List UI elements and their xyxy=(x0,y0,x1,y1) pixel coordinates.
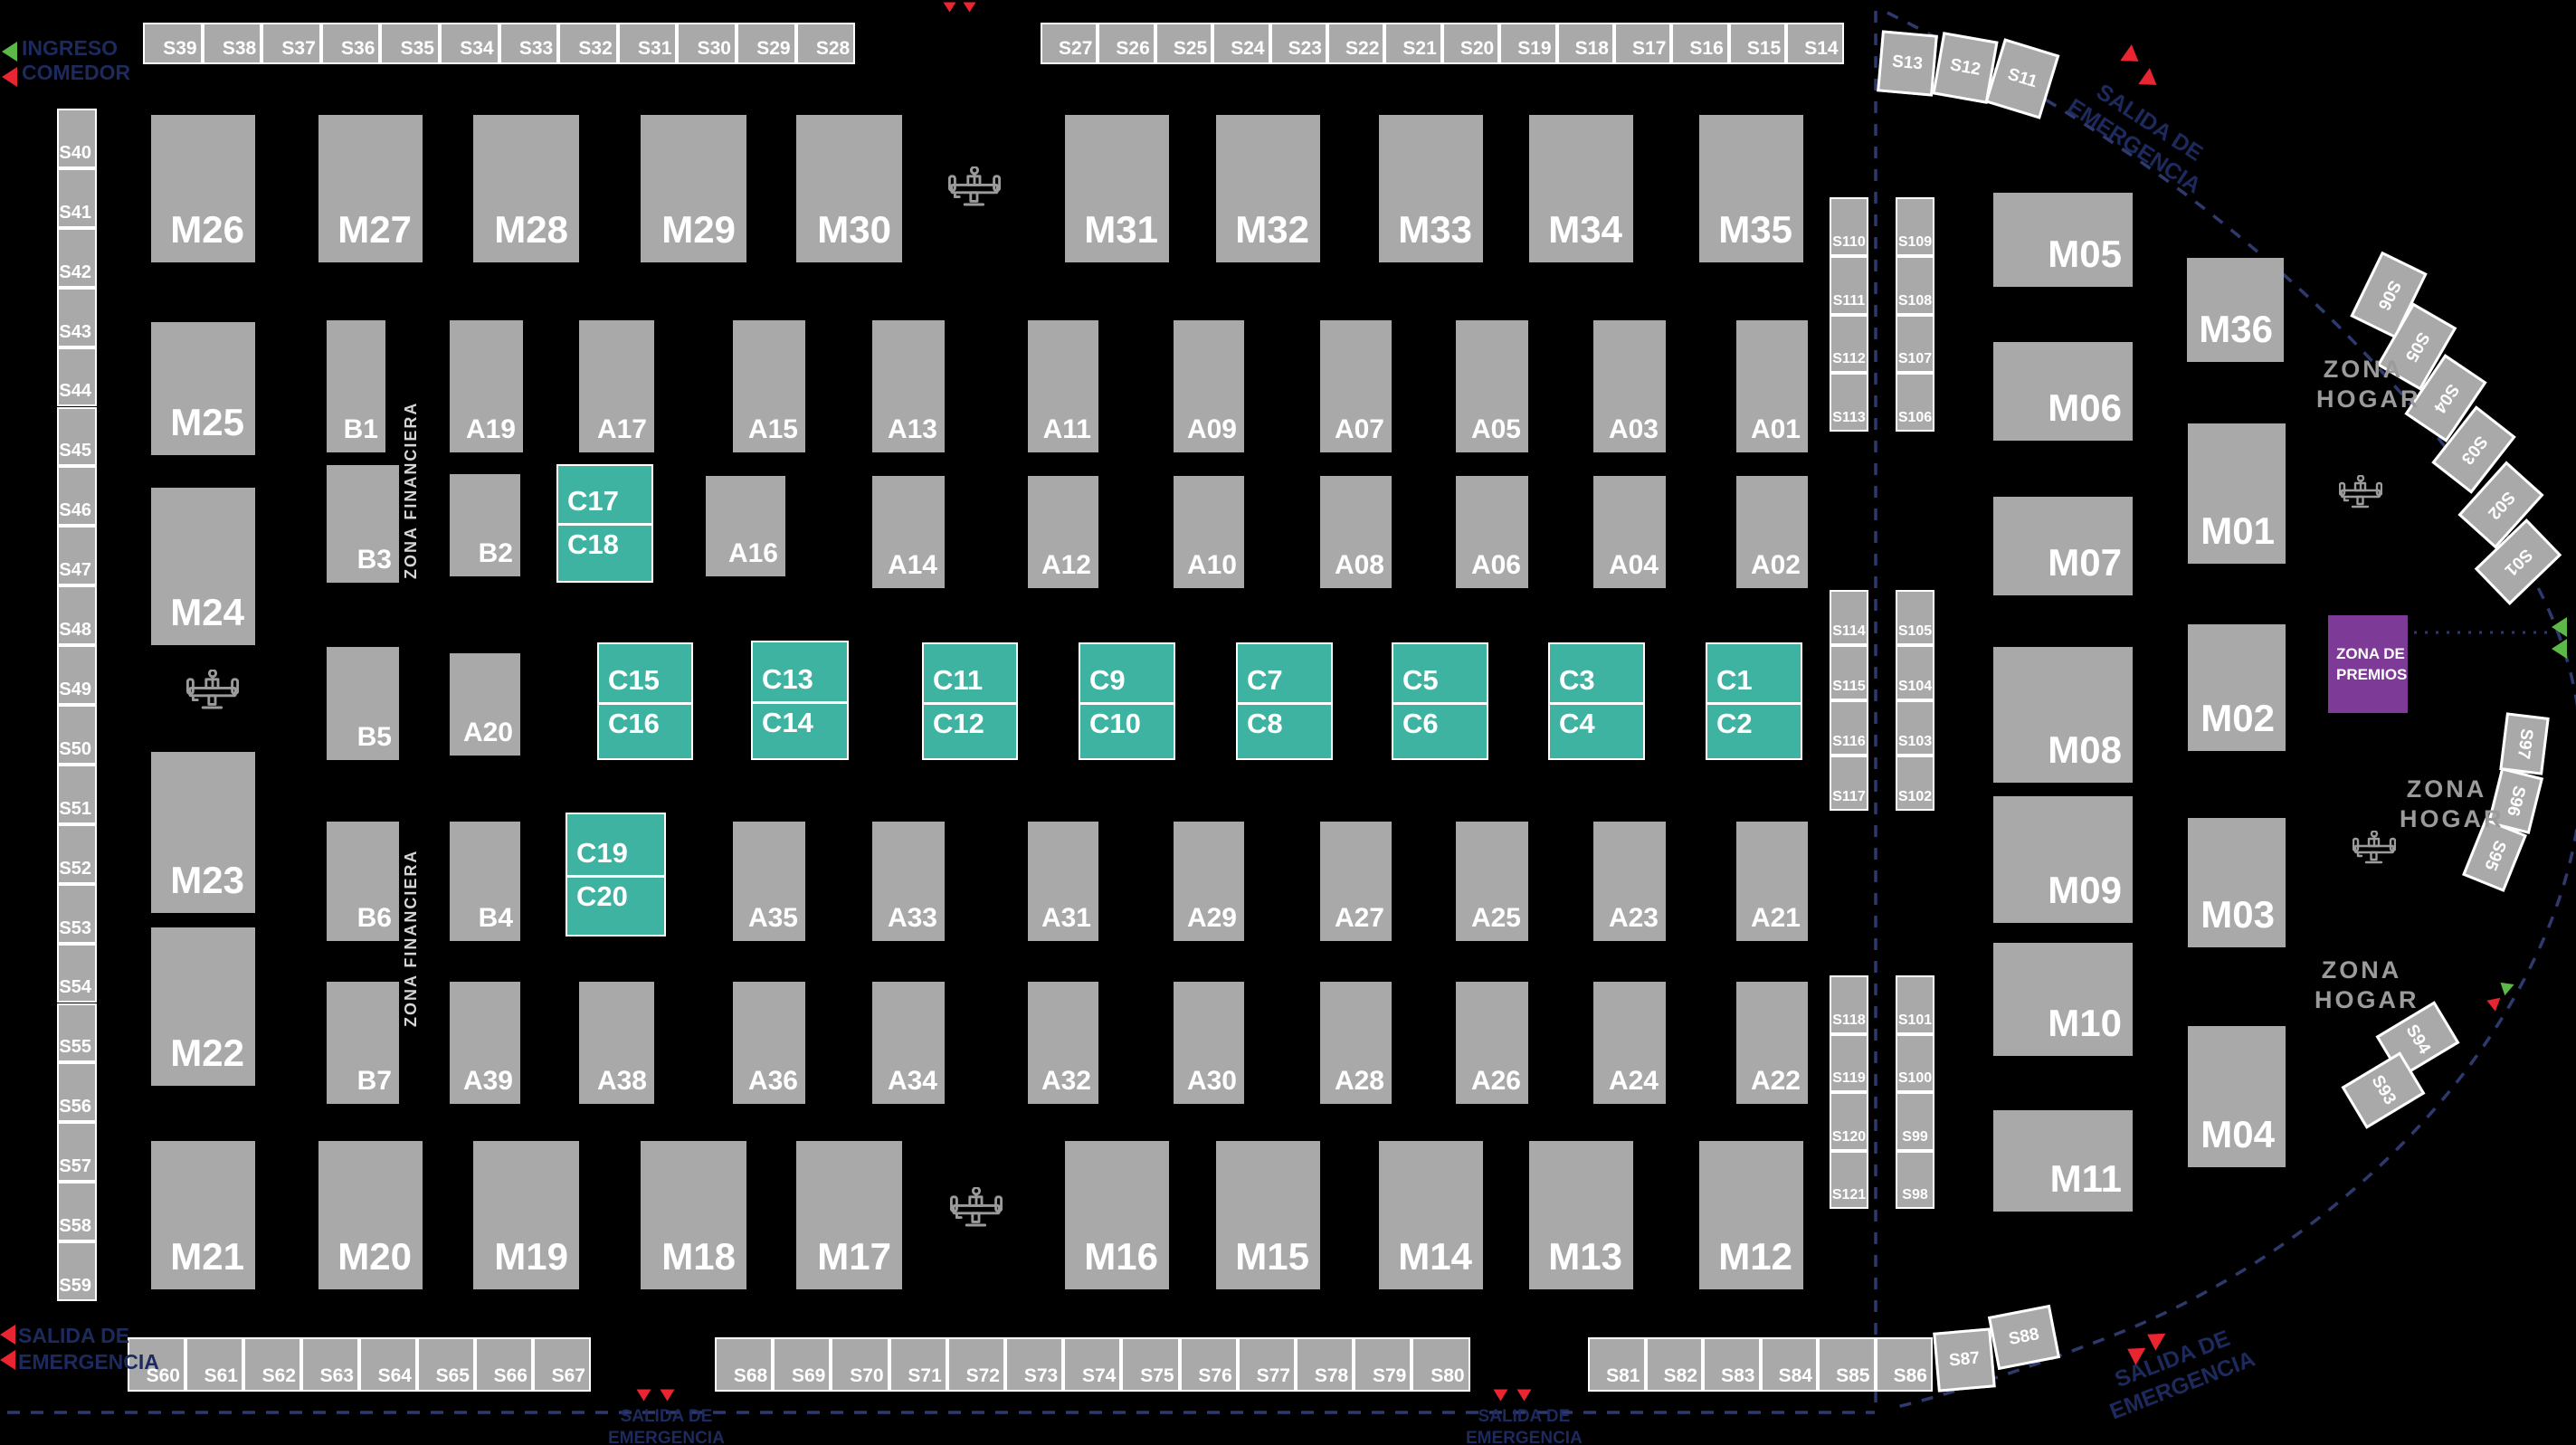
booth-s75[interactable]: S75 xyxy=(1121,1337,1179,1392)
booth-m02[interactable]: M02 xyxy=(2188,624,2286,751)
booth-label: A17 xyxy=(597,414,654,452)
booth-label: M32 xyxy=(1235,208,1320,262)
booth-s97[interactable]: S97 xyxy=(2499,712,2549,775)
booth-label: S84 xyxy=(1779,1365,1816,1390)
booth-label: C5 xyxy=(1402,666,1439,694)
booth-label: A14 xyxy=(888,550,945,588)
booth-m29[interactable]: M29 xyxy=(641,115,746,262)
booth-s101[interactable]: S101 xyxy=(1896,975,1934,1034)
booth-a35[interactable]: A35 xyxy=(733,822,805,941)
zone-hogar-label: ZONAHOGAR xyxy=(2316,355,2410,414)
booth-a07[interactable]: A07 xyxy=(1320,320,1392,452)
booth-s37[interactable]: S37 xyxy=(261,23,321,64)
booth-b5[interactable]: B5 xyxy=(327,647,399,760)
booth-m18[interactable]: M18 xyxy=(641,1141,746,1289)
booth-a23[interactable]: A23 xyxy=(1593,822,1666,941)
booth-b4[interactable]: B4 xyxy=(450,822,520,941)
booth-m10[interactable]: M10 xyxy=(1993,943,2133,1056)
booth-a20[interactable]: A20 xyxy=(450,653,520,756)
booth-a05[interactable]: A05 xyxy=(1456,320,1528,452)
booth-label: S62 xyxy=(262,1365,299,1390)
booth-s21[interactable]: S21 xyxy=(1384,23,1441,64)
booth-a27[interactable]: A27 xyxy=(1320,822,1392,941)
booth-m20[interactable]: M20 xyxy=(318,1141,423,1289)
booth-s40[interactable]: S40 xyxy=(57,109,97,168)
booth-s116[interactable]: S116 xyxy=(1830,700,1868,756)
booth-b1[interactable]: B1 xyxy=(327,320,385,452)
booth-s62[interactable]: S62 xyxy=(243,1337,301,1392)
booth-s120[interactable]: S120 xyxy=(1830,1092,1868,1151)
booth-s38[interactable]: S38 xyxy=(203,23,262,64)
booth-label: A35 xyxy=(748,903,805,941)
booth-label: M20 xyxy=(337,1235,423,1289)
booth-s16[interactable]: S16 xyxy=(1671,23,1728,64)
booth-s13[interactable]: S13 xyxy=(1877,30,1938,96)
booth-s107[interactable]: S107 xyxy=(1896,315,1934,374)
booth-c7-c8[interactable]: C7C8 xyxy=(1236,642,1333,760)
red-arrow xyxy=(944,3,956,13)
booth-label: B6 xyxy=(357,903,399,941)
booth-s66[interactable]: S66 xyxy=(475,1337,533,1392)
booth-s65[interactable]: S65 xyxy=(417,1337,475,1392)
booth-a24[interactable]: A24 xyxy=(1593,982,1666,1104)
booth-a22[interactable]: A22 xyxy=(1736,982,1808,1104)
booth-m08[interactable]: M08 xyxy=(1993,647,2133,783)
red-arrow xyxy=(637,1390,651,1402)
booth-s87[interactable]: S87 xyxy=(1933,1327,1996,1392)
booth-label: S97 xyxy=(2513,727,2536,760)
booth-m22[interactable]: M22 xyxy=(151,927,255,1086)
booth-label: M29 xyxy=(661,208,746,262)
booth-m15[interactable]: M15 xyxy=(1216,1141,1320,1289)
booth-label: C11 xyxy=(933,666,983,694)
booth-label: S06 xyxy=(2373,277,2405,313)
booth-s85[interactable]: S85 xyxy=(1818,1337,1876,1392)
booth-s70[interactable]: S70 xyxy=(831,1337,889,1392)
booth-m25[interactable]: M25 xyxy=(151,322,255,455)
booth-label: S31 xyxy=(638,38,675,62)
booth-label: M34 xyxy=(1548,208,1633,262)
booth-s45[interactable]: S45 xyxy=(57,407,97,467)
booth-s121[interactable]: S121 xyxy=(1830,1151,1868,1210)
booth-label: A16 xyxy=(728,538,785,576)
booth-label: C16 xyxy=(608,709,660,737)
booth-label: S50 xyxy=(59,739,95,763)
booth-label: A05 xyxy=(1471,414,1528,452)
booth-label: C7 xyxy=(1247,666,1283,694)
booth-label: S116 xyxy=(1832,734,1865,754)
booth-m21[interactable]: M21 xyxy=(151,1141,255,1289)
booth-s30[interactable]: S30 xyxy=(677,23,737,64)
booth-c9-c10[interactable]: C9C10 xyxy=(1079,642,1175,760)
booth-label: S38 xyxy=(223,38,260,62)
booth-s28[interactable]: S28 xyxy=(796,23,856,64)
booth-label: M03 xyxy=(2201,893,2286,947)
booth-a39[interactable]: A39 xyxy=(450,982,520,1104)
booth-s109[interactable]: S109 xyxy=(1896,197,1934,256)
booth-label: S80 xyxy=(1431,1365,1468,1390)
booth-a08[interactable]: A08 xyxy=(1320,476,1392,588)
zone-premios-label: PREMIOS xyxy=(2336,664,2408,685)
booth-a38[interactable]: A38 xyxy=(579,982,654,1104)
booth-label: A33 xyxy=(888,903,945,941)
booth-s86[interactable]: S86 xyxy=(1876,1337,1934,1392)
booth-s100[interactable]: S100 xyxy=(1896,1034,1934,1093)
booth-s108[interactable]: S108 xyxy=(1896,256,1934,315)
booth-label: M31 xyxy=(1084,208,1169,262)
booth-label: S21 xyxy=(1402,38,1440,62)
booth-s111[interactable]: S111 xyxy=(1830,256,1868,315)
booth-s17[interactable]: S17 xyxy=(1614,23,1671,64)
divider-line xyxy=(1393,702,1487,705)
booth-s73[interactable]: S73 xyxy=(1005,1337,1063,1392)
booth-label: S101 xyxy=(1898,1012,1932,1032)
booth-s18[interactable]: S18 xyxy=(1557,23,1614,64)
booth-label: C15 xyxy=(608,666,660,694)
booth-label: S53 xyxy=(59,918,95,942)
booth-label: S03 xyxy=(2457,432,2491,468)
booth-s115[interactable]: S115 xyxy=(1830,645,1868,700)
booth-label: S83 xyxy=(1721,1365,1758,1390)
booth-s104[interactable]: S104 xyxy=(1896,645,1934,700)
booth-label: S95 xyxy=(2479,837,2509,873)
booth-c11-c12[interactable]: C11C12 xyxy=(922,642,1018,760)
booth-s42[interactable]: S42 xyxy=(57,228,97,288)
booth-label: A28 xyxy=(1335,1066,1392,1104)
booth-m26[interactable]: M26 xyxy=(151,115,255,262)
booth-label: S54 xyxy=(59,977,95,1001)
booth-label: S44 xyxy=(59,381,95,404)
booth-m12[interactable]: M12 xyxy=(1699,1141,1803,1289)
booth-s51[interactable]: S51 xyxy=(57,765,97,824)
salida-line: EMERGENCIA xyxy=(1466,1428,1583,1445)
booth-label: S19 xyxy=(1517,38,1554,62)
booth-label: S45 xyxy=(59,441,95,464)
booth-m03[interactable]: M03 xyxy=(2188,818,2286,947)
booth-s55[interactable]: S55 xyxy=(57,1003,97,1063)
booth-c3-c4[interactable]: C3C4 xyxy=(1548,642,1645,760)
booth-s35[interactable]: S35 xyxy=(380,23,440,64)
booth-label: A23 xyxy=(1609,903,1666,941)
booth-b2[interactable]: B2 xyxy=(450,474,520,576)
booth-s119[interactable]: S119 xyxy=(1830,1034,1868,1093)
booth-s53[interactable]: S53 xyxy=(57,884,97,944)
divider-line xyxy=(924,702,1016,705)
booth-label: S41 xyxy=(59,203,95,226)
booth-s57[interactable]: S57 xyxy=(57,1122,97,1182)
booth-m04[interactable]: M04 xyxy=(2188,1026,2286,1167)
booth-label: S86 xyxy=(1894,1365,1931,1390)
booth-a32[interactable]: A32 xyxy=(1028,982,1098,1104)
booth-label: S59 xyxy=(59,1276,95,1299)
booth-s46[interactable]: S46 xyxy=(57,466,97,526)
booth-s33[interactable]: S33 xyxy=(499,23,559,64)
booth-label: C13 xyxy=(762,665,813,693)
booth-m36[interactable]: M36 xyxy=(2187,258,2284,362)
booth-label: S04 xyxy=(2429,380,2462,416)
entrance-label: INGRESOCOMEDOR xyxy=(22,36,130,85)
booth-label: M10 xyxy=(2048,1002,2133,1056)
booth-s82[interactable]: S82 xyxy=(1646,1337,1704,1392)
booth-m30[interactable]: M30 xyxy=(796,115,902,262)
booth-m06[interactable]: M06 xyxy=(1993,342,2133,441)
booth-m05[interactable]: M05 xyxy=(1993,193,2133,287)
booth-a36[interactable]: A36 xyxy=(733,982,805,1104)
booth-s106[interactable]: S106 xyxy=(1896,373,1934,432)
booth-s32[interactable]: S32 xyxy=(558,23,618,64)
booth-s67[interactable]: S67 xyxy=(533,1337,591,1392)
booth-s56[interactable]: S56 xyxy=(57,1062,97,1122)
booth-b7[interactable]: B7 xyxy=(327,982,399,1104)
booth-s112[interactable]: S112 xyxy=(1830,315,1868,374)
booth-s27[interactable]: S27 xyxy=(1041,23,1098,64)
booth-a19[interactable]: A19 xyxy=(450,320,523,452)
booth-s52[interactable]: S52 xyxy=(57,824,97,884)
booth-label: A27 xyxy=(1335,903,1392,941)
booth-label: B7 xyxy=(357,1066,399,1104)
booth-label: S01 xyxy=(2500,544,2536,579)
red-arrow xyxy=(1517,1390,1532,1402)
service-cart-icon xyxy=(2339,475,2382,511)
booth-label: M25 xyxy=(170,401,255,455)
booth-a30[interactable]: A30 xyxy=(1174,982,1244,1104)
booth-s113[interactable]: S113 xyxy=(1830,373,1868,432)
booth-label: S73 xyxy=(1024,1365,1061,1390)
booth-label: S120 xyxy=(1832,1129,1866,1149)
booth-label: M06 xyxy=(2048,386,2133,441)
booth-m31[interactable]: M31 xyxy=(1065,115,1169,262)
booth-s58[interactable]: S58 xyxy=(57,1182,97,1241)
booth-label: M33 xyxy=(1398,208,1483,262)
booth-a12[interactable]: A12 xyxy=(1028,476,1098,588)
booth-s103[interactable]: S103 xyxy=(1896,700,1934,756)
booth-label: S49 xyxy=(59,680,95,703)
booth-label: B5 xyxy=(357,722,399,760)
booth-m35[interactable]: M35 xyxy=(1699,115,1803,262)
booth-s83[interactable]: S83 xyxy=(1703,1337,1761,1392)
salida-line: SALIDA DE xyxy=(18,1323,159,1349)
booth-b3[interactable]: B3 xyxy=(327,465,399,583)
booth-label: S112 xyxy=(1832,351,1865,371)
red-arrow xyxy=(964,3,976,13)
booth-s44[interactable]: S44 xyxy=(57,347,97,407)
booth-a10[interactable]: A10 xyxy=(1174,476,1244,588)
booth-s23[interactable]: S23 xyxy=(1270,23,1327,64)
booth-m13[interactable]: M13 xyxy=(1529,1141,1633,1289)
booth-s43[interactable]: S43 xyxy=(57,288,97,347)
booth-m14[interactable]: M14 xyxy=(1379,1141,1483,1289)
booth-s63[interactable]: S63 xyxy=(301,1337,359,1392)
booth-a15[interactable]: A15 xyxy=(733,320,805,452)
booth-s59[interactable]: S59 xyxy=(57,1241,97,1301)
booth-s69[interactable]: S69 xyxy=(773,1337,831,1392)
booth-label: A34 xyxy=(888,1066,945,1104)
booth-m19[interactable]: M19 xyxy=(473,1141,579,1289)
booth-s29[interactable]: S29 xyxy=(737,23,796,64)
booth-s117[interactable]: S117 xyxy=(1830,756,1868,811)
booth-s26[interactable]: S26 xyxy=(1098,23,1155,64)
booth-m32[interactable]: M32 xyxy=(1216,115,1320,262)
booth-s74[interactable]: S74 xyxy=(1063,1337,1121,1392)
booth-a04[interactable]: A04 xyxy=(1593,476,1666,588)
booth-c19-c20[interactable]: C19C20 xyxy=(566,813,666,936)
booth-m07[interactable]: M07 xyxy=(1993,497,2133,595)
booth-label: A25 xyxy=(1471,903,1528,941)
booth-label: C14 xyxy=(762,708,813,737)
booth-label: M08 xyxy=(2048,728,2133,783)
booth-a17[interactable]: A17 xyxy=(579,320,654,452)
booth-m01[interactable]: M01 xyxy=(2188,423,2286,564)
booth-label: M36 xyxy=(2199,308,2284,362)
divider-line xyxy=(753,701,847,704)
booth-b6[interactable]: B6 xyxy=(327,822,399,941)
booth-label: M26 xyxy=(170,208,255,262)
booth-a28[interactable]: A28 xyxy=(1320,982,1392,1104)
booth-s98[interactable]: S98 xyxy=(1896,1151,1934,1210)
booth-label: S78 xyxy=(1315,1365,1352,1390)
booth-s14[interactable]: S14 xyxy=(1786,23,1843,64)
booth-a13[interactable]: A13 xyxy=(872,320,945,452)
booth-s36[interactable]: S36 xyxy=(321,23,381,64)
salida-emergencia-label: SALIDA DEEMERGENCIA xyxy=(2062,70,2221,201)
booth-s24[interactable]: S24 xyxy=(1212,23,1269,64)
service-cart-icon-wrap xyxy=(186,670,239,718)
booth-s71[interactable]: S71 xyxy=(889,1337,947,1392)
booth-s81[interactable]: S81 xyxy=(1588,1337,1646,1392)
booth-label: M23 xyxy=(170,859,255,913)
zone-premios[interactable]: ZONA DEPREMIOS xyxy=(2328,615,2408,713)
booth-s99[interactable]: S99 xyxy=(1896,1092,1934,1151)
booth-m11[interactable]: M11 xyxy=(1993,1110,2133,1212)
booth-label: S52 xyxy=(59,859,95,882)
booth-s64[interactable]: S64 xyxy=(359,1337,417,1392)
booth-label: S23 xyxy=(1288,38,1326,62)
booth-s84[interactable]: S84 xyxy=(1761,1337,1819,1392)
booth-m28[interactable]: M28 xyxy=(473,115,579,262)
booth-m34[interactable]: M34 xyxy=(1529,115,1633,262)
booth-m33[interactable]: M33 xyxy=(1379,115,1483,262)
booth-a33[interactable]: A33 xyxy=(872,822,945,941)
booth-a03[interactable]: A03 xyxy=(1593,320,1666,452)
divider-line xyxy=(1550,702,1643,705)
booth-m16[interactable]: M16 xyxy=(1065,1141,1169,1289)
booth-s77[interactable]: S77 xyxy=(1238,1337,1296,1392)
booth-s118[interactable]: S118 xyxy=(1830,975,1868,1034)
booth-s15[interactable]: S15 xyxy=(1729,23,1786,64)
booth-m24[interactable]: M24 xyxy=(151,488,255,645)
booth-s105[interactable]: S105 xyxy=(1896,590,1934,645)
red-arrow xyxy=(0,1325,15,1345)
booth-label: A15 xyxy=(748,414,805,452)
booth-s79[interactable]: S79 xyxy=(1354,1337,1412,1392)
booth-label: C4 xyxy=(1559,709,1595,737)
booth-s34[interactable]: S34 xyxy=(440,23,499,64)
booth-label: S42 xyxy=(59,262,95,286)
booth-label: S71 xyxy=(908,1365,945,1390)
booth-s48[interactable]: S48 xyxy=(57,585,97,645)
booth-label: S11 xyxy=(2005,65,2039,93)
booth-s22[interactable]: S22 xyxy=(1327,23,1384,64)
booth-s61[interactable]: S61 xyxy=(185,1337,243,1392)
booth-label: S58 xyxy=(59,1216,95,1240)
booth-s39[interactable]: S39 xyxy=(143,23,203,64)
booth-a21[interactable]: A21 xyxy=(1736,822,1808,941)
booth-label: S57 xyxy=(59,1156,95,1180)
booth-s25[interactable]: S25 xyxy=(1155,23,1212,64)
booth-c1-c2[interactable]: C1C2 xyxy=(1706,642,1802,760)
booth-s76[interactable]: S76 xyxy=(1180,1337,1238,1392)
service-cart-icon-wrap xyxy=(2339,475,2382,516)
booth-a16[interactable]: A16 xyxy=(706,476,785,576)
booth-a34[interactable]: A34 xyxy=(872,982,945,1104)
booth-c15-c16[interactable]: C15C16 xyxy=(597,642,693,760)
booth-s88[interactable]: S88 xyxy=(1988,1305,2060,1370)
booth-s80[interactable]: S80 xyxy=(1412,1337,1469,1392)
booth-label: C20 xyxy=(576,882,628,910)
booth-m09[interactable]: M09 xyxy=(1993,796,2133,923)
booth-s31[interactable]: S31 xyxy=(618,23,678,64)
booth-c5-c6[interactable]: C5C6 xyxy=(1392,642,1488,760)
booth-label: S40 xyxy=(59,143,95,166)
zone-financiera-label: ZONA FINANCIERA xyxy=(402,855,422,1027)
booth-label: A22 xyxy=(1751,1066,1808,1104)
booth-label: S115 xyxy=(1832,679,1865,699)
floor-map: S39S38S37S36S35S34S33S32S31S30S29S28S27S… xyxy=(0,0,2576,1445)
booth-a14[interactable]: A14 xyxy=(872,476,945,588)
booth-a25[interactable]: A25 xyxy=(1456,822,1528,941)
booth-a31[interactable]: A31 xyxy=(1028,822,1098,941)
booth-a06[interactable]: A06 xyxy=(1456,476,1528,588)
booth-m27[interactable]: M27 xyxy=(318,115,423,262)
booth-a29[interactable]: A29 xyxy=(1174,822,1244,941)
booth-s50[interactable]: S50 xyxy=(57,705,97,765)
booth-a11[interactable]: A11 xyxy=(1028,320,1098,452)
booth-a26[interactable]: A26 xyxy=(1456,982,1528,1104)
booth-s19[interactable]: S19 xyxy=(1499,23,1556,64)
booth-c17-c18[interactable]: C17C18 xyxy=(556,464,653,583)
booth-label: M04 xyxy=(2201,1113,2286,1167)
booth-label: M02 xyxy=(2201,697,2286,751)
booth-label: A21 xyxy=(1751,903,1808,941)
booth-a09[interactable]: A09 xyxy=(1174,320,1244,452)
booth-label: M35 xyxy=(1718,208,1803,262)
booth-s49[interactable]: S49 xyxy=(57,645,97,705)
booth-label: S117 xyxy=(1832,789,1865,809)
booth-label: A04 xyxy=(1609,550,1666,588)
booth-a01[interactable]: A01 xyxy=(1736,320,1808,452)
booth-c13-c14[interactable]: C13C14 xyxy=(751,641,849,760)
booth-s72[interactable]: S72 xyxy=(947,1337,1005,1392)
booth-s114[interactable]: S114 xyxy=(1830,590,1868,645)
booth-s47[interactable]: S47 xyxy=(57,526,97,585)
booth-a02[interactable]: A02 xyxy=(1736,476,1808,588)
booth-s110[interactable]: S110 xyxy=(1830,197,1868,256)
booth-label: S48 xyxy=(59,620,95,643)
booth-s78[interactable]: S78 xyxy=(1296,1337,1354,1392)
booth-m23[interactable]: M23 xyxy=(151,752,255,913)
zone-hogar-line: ZONA xyxy=(2316,355,2410,385)
booth-s41[interactable]: S41 xyxy=(57,168,97,228)
booth-s68[interactable]: S68 xyxy=(715,1337,773,1392)
booth-label: A09 xyxy=(1187,414,1244,452)
booth-s20[interactable]: S20 xyxy=(1442,23,1499,64)
booth-s54[interactable]: S54 xyxy=(57,944,97,1003)
booth-s102[interactable]: S102 xyxy=(1896,756,1934,811)
booth-label: S98 xyxy=(1902,1187,1927,1207)
booth-label: S55 xyxy=(59,1037,95,1060)
booth-m17[interactable]: M17 xyxy=(796,1141,902,1289)
booth-label: S79 xyxy=(1373,1365,1410,1390)
